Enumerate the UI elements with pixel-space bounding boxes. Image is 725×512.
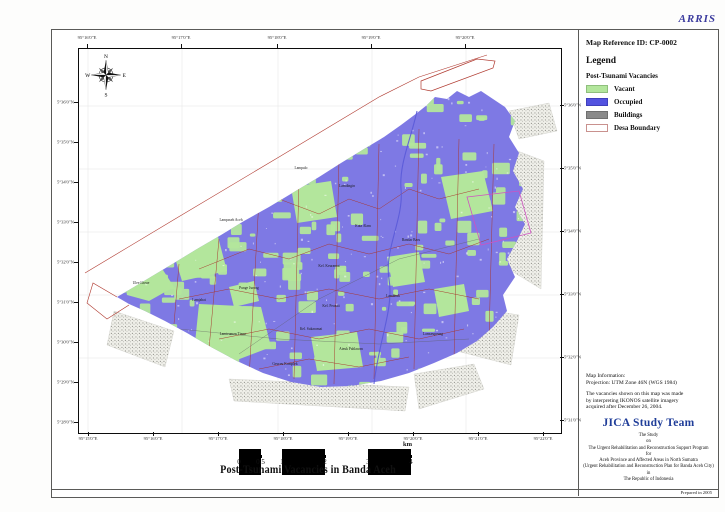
dither-dot xyxy=(191,136,193,137)
coord-label-top: 95°17'0"E xyxy=(172,35,191,40)
vacant-patch xyxy=(202,100,216,105)
dither-dot xyxy=(379,134,380,136)
map-title: Post-Tsunami Vacancies in Banda Aceh xyxy=(176,464,440,476)
vacant-patch xyxy=(328,253,339,259)
dither-dot xyxy=(488,208,490,209)
dither-dot xyxy=(221,340,222,341)
dither-dot xyxy=(324,195,326,196)
dither-dot xyxy=(264,281,265,282)
vacant-patch xyxy=(113,354,126,363)
dither-dot xyxy=(158,142,160,143)
vacant-patch xyxy=(482,170,487,178)
legend-swatch xyxy=(586,124,608,132)
dither-dot xyxy=(277,142,279,144)
dither-dot xyxy=(253,243,254,245)
dither-dot xyxy=(308,131,310,132)
dither-dot xyxy=(175,338,177,339)
vacant-patch xyxy=(436,158,440,171)
vacant-patch xyxy=(390,108,401,111)
legend-swatch xyxy=(586,111,608,119)
dither-dot xyxy=(136,376,137,378)
dither-dot xyxy=(195,341,197,343)
tick-top xyxy=(87,44,88,48)
vacant-patch xyxy=(218,264,227,274)
dither-dot xyxy=(472,181,474,182)
dither-dot xyxy=(238,164,240,165)
dither-dot xyxy=(104,376,105,378)
vacant-patch xyxy=(435,223,442,231)
place-label: Bandar Baru xyxy=(402,238,420,242)
vacant-patch xyxy=(312,222,317,231)
dither-dot xyxy=(278,121,280,123)
dither-dot xyxy=(312,311,314,313)
vacant-patch xyxy=(522,374,539,380)
dither-dot xyxy=(436,146,438,148)
dither-dot xyxy=(506,307,508,309)
vacant-patch xyxy=(537,319,549,332)
dither-dot xyxy=(485,167,486,168)
vacant-patch xyxy=(336,330,349,341)
dither-dot xyxy=(311,259,312,261)
dither-dot xyxy=(264,154,265,156)
vacant-patch xyxy=(290,353,302,360)
dither-dot xyxy=(192,359,194,360)
dither-dot xyxy=(135,368,136,370)
vacant-patch xyxy=(112,118,127,121)
vacant-patch xyxy=(116,350,122,362)
dither-dot xyxy=(465,125,467,126)
legend-item-label: Desa Boundary xyxy=(614,124,660,132)
dither-dot xyxy=(326,299,327,301)
dither-dot xyxy=(342,226,343,227)
dither-dot xyxy=(212,163,214,164)
dither-dot xyxy=(323,172,324,174)
dither-dot xyxy=(120,100,121,101)
dither-dot xyxy=(301,239,303,241)
vacant-patch xyxy=(180,180,187,189)
vacant-patch xyxy=(240,194,248,203)
vacant-patch xyxy=(270,195,282,202)
prepared-note: Prepared in 2005 xyxy=(560,490,715,495)
dither-dot xyxy=(369,95,370,97)
vacant-patch xyxy=(356,98,372,102)
dither-dot xyxy=(98,326,100,328)
dither-dot xyxy=(279,137,281,138)
dither-dot xyxy=(307,136,308,138)
dither-dot xyxy=(202,176,203,177)
vacant-patch xyxy=(524,332,542,343)
dither-dot xyxy=(440,262,441,264)
vacant-patch xyxy=(229,242,246,251)
dither-dot xyxy=(256,129,257,130)
vacant-patch xyxy=(424,303,437,314)
dither-dot xyxy=(311,216,313,217)
vacant-patch xyxy=(162,297,175,302)
dither-dot xyxy=(465,171,467,172)
legend-item: Buildings xyxy=(586,108,712,121)
legend-subtitle: Post-Tsunami Vacancies xyxy=(586,72,658,80)
tick-left xyxy=(74,222,78,223)
dither-dot xyxy=(399,300,401,302)
vacant-patch xyxy=(120,118,131,123)
dither-dot xyxy=(343,296,344,298)
tick-top xyxy=(277,44,278,48)
vacant-patch xyxy=(541,99,547,103)
dither-dot xyxy=(182,172,184,173)
compass-star-highlight xyxy=(91,60,121,90)
vacant-patch xyxy=(300,227,311,234)
dither-dot xyxy=(104,238,105,240)
vacant-patch xyxy=(250,234,256,237)
vacant-patch xyxy=(534,356,543,366)
coord-label-top: 95°19'0"E xyxy=(362,35,381,40)
dither-dot xyxy=(96,263,97,265)
dither-dot xyxy=(337,134,339,136)
vacant-patch xyxy=(112,374,121,387)
vacant-patch xyxy=(94,207,104,214)
dither-dot xyxy=(153,148,155,150)
dither-dot xyxy=(451,102,452,104)
vacant-patch xyxy=(118,287,126,293)
dither-dot xyxy=(191,99,193,101)
dither-dot xyxy=(527,396,529,398)
coord-label-bottom: 95°21'0"E xyxy=(469,436,488,441)
vacant-patch xyxy=(185,381,192,392)
dither-dot xyxy=(129,128,130,130)
dither-dot xyxy=(180,348,182,349)
credit-line: The Urgent Rehabilitation and Reconstruc… xyxy=(579,446,718,452)
tick-bottom xyxy=(283,432,284,436)
vacant-patch xyxy=(472,202,480,206)
vacant-patch xyxy=(247,146,255,156)
legend-items: VacantOccupiedBuildingsDesa Boundary xyxy=(586,82,712,134)
dither-dot xyxy=(344,276,346,278)
dither-dot xyxy=(387,95,389,96)
dither-dot xyxy=(234,321,236,322)
tick-left xyxy=(74,422,78,423)
vacant-patch xyxy=(164,287,181,295)
dither-dot xyxy=(112,142,113,144)
vacant-patch xyxy=(356,147,368,154)
vacant-patch xyxy=(391,348,399,357)
vacant-patch xyxy=(382,307,386,311)
vacant-patch xyxy=(104,315,110,327)
vacant-patch xyxy=(228,102,236,106)
vacant-patch xyxy=(502,369,506,380)
vacant-patch xyxy=(187,213,201,223)
coord-label-top: 95°16'0"E xyxy=(78,35,97,40)
dither-dot xyxy=(411,231,412,232)
vacant-patch xyxy=(514,294,525,306)
dither-dot xyxy=(513,211,515,213)
legend-item: Occupied xyxy=(586,95,712,108)
vacant-patch xyxy=(306,203,318,208)
dither-dot xyxy=(397,247,398,249)
dither-dot xyxy=(526,144,528,145)
vacant-patch xyxy=(179,98,188,104)
vacant-patch xyxy=(156,201,169,207)
dither-dot xyxy=(461,212,463,214)
dither-dot xyxy=(457,276,459,278)
dither-dot xyxy=(266,228,267,229)
dither-dot xyxy=(468,102,470,104)
vacant-patch xyxy=(199,354,215,362)
arris-watermark: ARRIS xyxy=(640,13,716,25)
vacant-patch xyxy=(242,306,253,317)
dither-dot xyxy=(174,225,175,227)
vacant-patch xyxy=(138,107,152,119)
study-credits: The StudyonThe Urgent Rehabilitation and… xyxy=(579,433,718,483)
dither-dot xyxy=(481,109,482,111)
coord-label-left: 5°29'0"N xyxy=(56,380,74,385)
tick-right xyxy=(560,357,564,358)
vacant-patch xyxy=(186,218,196,231)
info-panel: Map Reference ID: CP-0002 Legend Post-Ts… xyxy=(579,29,718,489)
dither-dot xyxy=(348,215,350,217)
dither-dot xyxy=(223,265,225,266)
dither-dot xyxy=(155,200,156,201)
dither-dot xyxy=(496,168,497,170)
tick-left xyxy=(74,342,78,343)
tick-left xyxy=(74,382,78,383)
map-note-line: The vacancies shown on this map was made xyxy=(586,391,683,398)
dither-dot xyxy=(257,145,258,146)
coord-label-bottom: 95°15'0"E xyxy=(79,436,98,441)
vacant-patch xyxy=(311,374,327,385)
vacant-patch xyxy=(94,208,106,221)
coord-label-left: 5°35'0"N xyxy=(56,140,74,145)
dither-dot xyxy=(190,367,192,369)
dither-dot xyxy=(275,243,276,244)
dither-dot xyxy=(410,234,412,236)
dither-dot xyxy=(478,392,479,393)
vacant-patch xyxy=(529,314,541,318)
dither-dot xyxy=(176,240,177,241)
dither-dot xyxy=(448,98,450,100)
tick-left xyxy=(74,302,78,303)
coord-label-left: 5°36'0"N xyxy=(56,100,74,105)
dither-dot xyxy=(446,337,448,338)
tick-left xyxy=(74,262,78,263)
dither-dot xyxy=(467,324,468,326)
dither-dot xyxy=(297,148,298,149)
dither-dot xyxy=(192,121,193,122)
dither-dot xyxy=(376,276,378,278)
vacant-patch xyxy=(472,298,480,305)
dither-dot xyxy=(508,252,510,254)
coord-label-left: 5°33'0"N xyxy=(56,220,74,225)
vacant-patch xyxy=(231,224,242,235)
dither-dot xyxy=(190,193,191,195)
dither-dot xyxy=(382,237,383,238)
dither-dot xyxy=(285,368,286,370)
dither-dot xyxy=(85,160,87,161)
dither-dot xyxy=(103,354,105,355)
harbor-spit xyxy=(421,59,495,91)
dither-dot xyxy=(259,321,260,322)
vacant-patch xyxy=(151,275,168,283)
dither-dot xyxy=(442,321,444,323)
vacant-patch xyxy=(424,94,434,105)
coord-label-top: 95°20'0"E xyxy=(456,35,475,40)
dither-dot xyxy=(368,106,370,107)
dither-dot xyxy=(406,369,407,370)
vacant-patch xyxy=(314,99,325,105)
dither-dot xyxy=(424,263,425,264)
vacant-patch xyxy=(239,151,245,161)
dither-dot xyxy=(493,370,495,372)
dither-dot xyxy=(240,146,242,147)
tick-right xyxy=(560,168,564,169)
vacant-patch xyxy=(346,304,354,311)
dither-dot xyxy=(232,113,234,115)
dither-dot xyxy=(306,206,307,208)
dither-dot xyxy=(171,295,173,296)
dither-dot xyxy=(267,354,268,355)
dither-dot xyxy=(195,281,197,283)
dither-dot xyxy=(293,263,295,264)
vacant-patch xyxy=(457,221,471,233)
dither-dot xyxy=(438,182,440,183)
dither-dot xyxy=(168,373,170,375)
dither-dot xyxy=(132,261,133,263)
dither-dot xyxy=(284,176,286,178)
dither-dot xyxy=(143,147,145,148)
dither-dot xyxy=(345,261,346,262)
compass-s-label: S xyxy=(104,92,107,98)
vacant-patch xyxy=(194,233,199,242)
dither-dot xyxy=(381,236,382,237)
dither-dot xyxy=(319,111,321,112)
place-label: Kel. Sukaramai xyxy=(300,327,322,331)
vacant-patch xyxy=(116,140,130,144)
vacant-patch xyxy=(421,174,427,184)
vacant-patch xyxy=(107,277,121,287)
dither-dot xyxy=(466,252,468,254)
vacant-patch xyxy=(306,209,311,216)
dither-dot xyxy=(495,187,496,189)
vacant-patch xyxy=(462,152,476,160)
dither-dot xyxy=(356,99,357,101)
dither-dot xyxy=(525,368,526,369)
tick-bottom xyxy=(88,432,89,436)
vacant-patch xyxy=(457,101,464,104)
tick-bottom xyxy=(218,432,219,436)
dither-dot xyxy=(487,152,488,154)
vacant-patch xyxy=(400,255,415,263)
dither-dot xyxy=(354,115,355,116)
vacant-patch xyxy=(208,346,216,356)
vacant-patch xyxy=(401,327,407,332)
dither-dot xyxy=(100,148,102,150)
tick-top xyxy=(181,44,182,48)
coord-label-left: 5°32'0"N xyxy=(56,260,74,265)
dither-dot xyxy=(225,249,227,251)
dither-dot xyxy=(547,276,549,278)
dither-dot xyxy=(240,246,241,247)
dither-dot xyxy=(300,131,301,132)
vacant-patch xyxy=(298,248,311,254)
dither-dot xyxy=(271,212,272,214)
tick-top xyxy=(465,44,466,48)
vacant-patch xyxy=(169,324,177,328)
dither-dot xyxy=(371,303,373,305)
dither-dot xyxy=(405,340,407,341)
vacant-patch xyxy=(165,260,174,267)
vacant-patch xyxy=(329,340,339,346)
vacant-patch xyxy=(184,175,195,182)
vacant-patch xyxy=(104,227,117,233)
dither-dot xyxy=(390,125,391,127)
coord-label-bottom: 95°22'0"E xyxy=(534,436,553,441)
compass-rose: N E S W xyxy=(85,54,127,98)
coord-label-left: 5°30'0"N xyxy=(56,340,74,345)
dither-dot xyxy=(197,167,198,169)
dither-dot xyxy=(443,261,444,263)
map-drawing: LampuloLamdinginKuta AlamBandar BaruKel.… xyxy=(79,49,561,433)
dither-dot xyxy=(263,358,265,360)
dither-dot xyxy=(370,192,371,194)
dither-dot xyxy=(132,242,133,244)
tick-left xyxy=(74,182,78,183)
vacant-patch xyxy=(418,221,427,234)
dither-dot xyxy=(520,284,521,286)
dither-dot xyxy=(106,196,108,198)
dither-dot xyxy=(178,318,179,320)
vacant-patch xyxy=(307,291,318,300)
dither-dot xyxy=(383,174,385,176)
dither-dot xyxy=(346,180,347,182)
map-info-note: The vacancies shown on this map was made… xyxy=(586,391,683,411)
vacant-patch xyxy=(493,193,506,205)
dither-dot xyxy=(472,333,474,334)
vacant-patch xyxy=(404,183,412,187)
vacant-patch xyxy=(259,342,276,350)
dither-dot xyxy=(411,312,412,313)
dither-dot xyxy=(405,187,406,189)
dither-dot xyxy=(395,166,396,167)
dither-dot xyxy=(204,107,206,109)
dither-dot xyxy=(372,195,374,197)
vacant-patch xyxy=(257,337,262,341)
dither-dot xyxy=(301,273,302,274)
coord-label-top: 95°18'0"E xyxy=(268,35,287,40)
tick-right xyxy=(560,420,564,421)
tick-right xyxy=(560,231,564,232)
vacant-patch xyxy=(478,117,484,120)
dither-dot xyxy=(380,151,382,152)
vacant-patch xyxy=(499,228,507,237)
dither-dot xyxy=(210,357,211,358)
compass-n-label: N xyxy=(104,54,108,60)
vacant-patch xyxy=(194,158,198,164)
vacant-patch xyxy=(174,383,187,390)
place-label: Lambhuk xyxy=(386,294,400,298)
vacant-patch xyxy=(397,301,415,306)
dither-dot xyxy=(124,230,125,231)
dither-dot xyxy=(266,323,267,325)
vacant-patch xyxy=(357,111,375,116)
dither-dot xyxy=(127,360,129,362)
dither-dot xyxy=(488,248,489,250)
coord-label-bottom: 95°19'0"E xyxy=(339,436,358,441)
place-label: Kel. Peuniti xyxy=(322,304,339,308)
dither-dot xyxy=(112,175,114,177)
vacant-patch xyxy=(91,343,105,354)
map-sheet-page: { "branding": { "watermark": "ARRIS", "p… xyxy=(0,0,725,512)
dither-dot xyxy=(480,259,482,261)
dither-dot xyxy=(503,241,504,243)
